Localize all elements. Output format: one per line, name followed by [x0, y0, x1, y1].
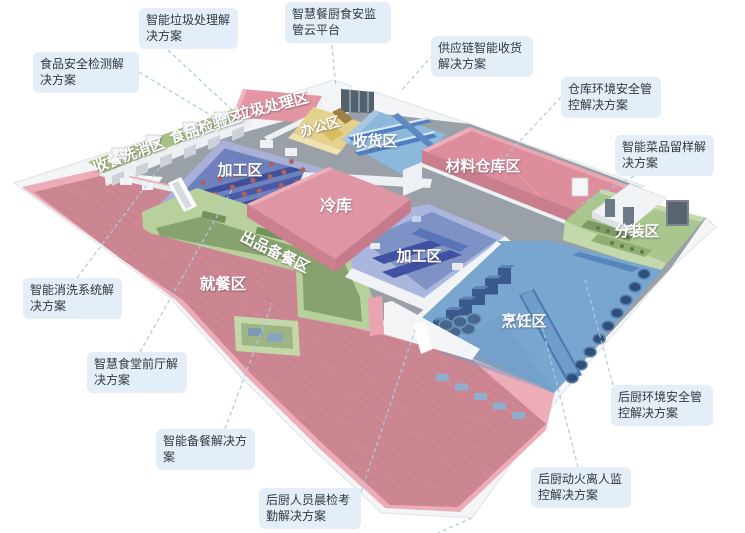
svg-text:分装区: 分装区: [614, 222, 659, 240]
svg-text:加工区: 加工区: [216, 162, 262, 179]
svg-text:就餐区: 就餐区: [200, 274, 247, 293]
svg-text:加工区: 加工区: [395, 248, 441, 265]
svg-text:冷库: 冷库: [320, 196, 352, 215]
svg-text:收货区: 收货区: [352, 132, 397, 150]
svg-text:材料仓库区: 材料仓库区: [445, 157, 520, 175]
svg-text:烹饪区: 烹饪区: [501, 312, 546, 330]
